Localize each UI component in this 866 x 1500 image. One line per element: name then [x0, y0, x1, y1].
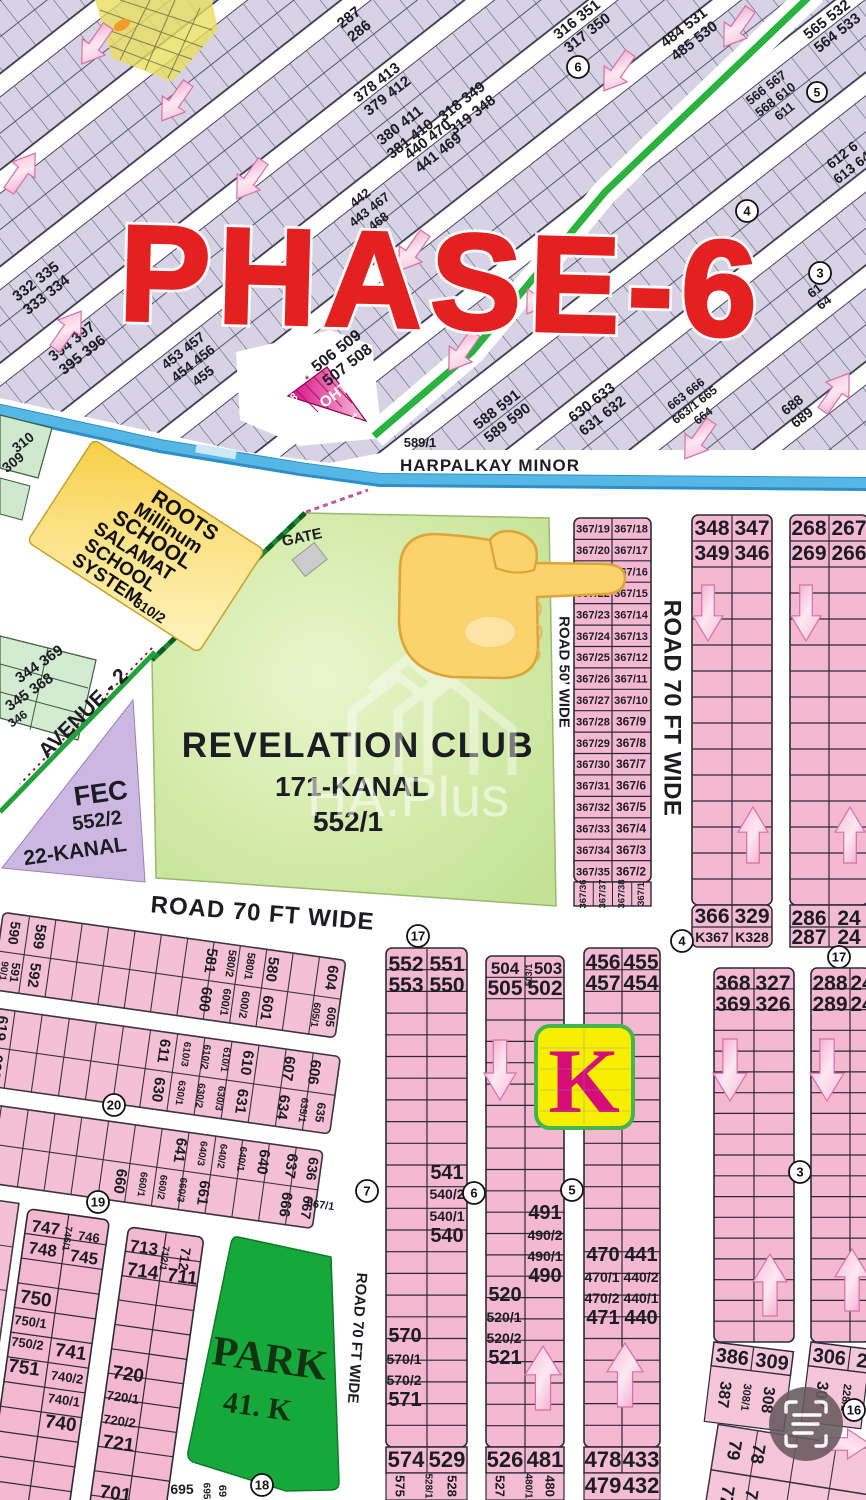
svg-text:641: 641: [170, 1137, 190, 1164]
svg-text:269: 269: [791, 542, 826, 565]
svg-text:18: 18: [255, 1478, 269, 1493]
svg-text:6: 6: [574, 60, 581, 75]
svg-text:367/1: 367/1: [636, 881, 647, 905]
svg-text:2: 2: [855, 1350, 866, 1373]
svg-text:747: 747: [30, 1216, 61, 1239]
svg-text:367/33: 367/33: [576, 824, 610, 836]
svg-text:526: 526: [487, 1447, 524, 1472]
svg-text:589/1: 589/1: [404, 435, 437, 450]
svg-text:746: 746: [77, 1228, 101, 1246]
svg-text:480: 480: [543, 1475, 558, 1497]
svg-text:367/30: 367/30: [576, 759, 610, 771]
svg-text:367/32: 367/32: [576, 802, 610, 814]
svg-text:541: 541: [430, 1162, 463, 1184]
svg-text:713: 713: [129, 1236, 160, 1259]
svg-text:329: 329: [734, 905, 769, 928]
svg-text:748: 748: [27, 1238, 58, 1261]
svg-text:367/34: 367/34: [576, 845, 611, 857]
svg-text:471: 471: [586, 1307, 619, 1329]
svg-text:367/4: 367/4: [616, 822, 646, 836]
svg-text:367/14: 367/14: [614, 609, 649, 621]
svg-text:528: 528: [445, 1475, 460, 1497]
svg-text:327: 327: [755, 972, 790, 995]
svg-text:607: 607: [278, 1055, 298, 1082]
svg-text:470/2: 470/2: [584, 1290, 619, 1306]
svg-text:714: 714: [125, 1259, 160, 1284]
svg-text:605: 605: [322, 1006, 339, 1028]
svg-text:570/1: 570/1: [386, 1351, 421, 1367]
svg-text:78: 78: [747, 1443, 770, 1466]
svg-text:432: 432: [623, 1473, 660, 1498]
svg-text:348: 348: [694, 517, 729, 540]
svg-text:478: 478: [585, 1447, 622, 1472]
svg-text:661: 661: [193, 1179, 213, 1206]
svg-text:367/26: 367/26: [576, 674, 610, 686]
svg-text:368: 368: [715, 972, 750, 995]
svg-text:740: 740: [43, 1411, 77, 1436]
svg-text:367/23: 367/23: [576, 609, 610, 621]
svg-text:502: 502: [527, 977, 562, 1000]
svg-text:19: 19: [91, 1195, 105, 1210]
svg-text:76: 76: [739, 1488, 762, 1500]
svg-text:551: 551: [429, 953, 464, 976]
svg-text:367/29: 367/29: [576, 738, 610, 750]
svg-text:387: 387: [714, 1380, 734, 1409]
svg-text:600: 600: [195, 986, 215, 1013]
svg-text:77: 77: [716, 1484, 739, 1500]
svg-text:711: 711: [166, 1265, 200, 1290]
svg-text:ROAD 50’ WIDE: ROAD 50’ WIDE: [556, 616, 573, 728]
svg-text:ROAD 70 FT WIDE: ROAD 70 FT WIDE: [659, 600, 686, 817]
svg-text:367/35: 367/35: [576, 866, 610, 878]
svg-text:456: 456: [585, 951, 620, 974]
svg-text:346: 346: [734, 542, 769, 565]
svg-text:367/11: 367/11: [614, 674, 647, 686]
svg-text:367/25: 367/25: [576, 652, 610, 664]
svg-text:695: 695: [170, 1481, 194, 1497]
svg-text:590: 590: [5, 920, 24, 946]
svg-text:580: 580: [262, 956, 282, 983]
svg-text:367/5: 367/5: [616, 800, 646, 814]
svg-text:366: 366: [694, 905, 729, 928]
svg-text:527: 527: [493, 1475, 508, 1497]
svg-text:*: *: [305, 374, 310, 386]
svg-text:601: 601: [256, 994, 276, 1021]
svg-text:637: 637: [281, 1152, 301, 1179]
svg-text:660: 660: [110, 1168, 130, 1195]
svg-text:289: 289: [812, 993, 847, 1016]
svg-text:17: 17: [411, 929, 425, 944]
svg-text:751: 751: [7, 1356, 42, 1381]
svg-text:367/28: 367/28: [576, 716, 610, 728]
svg-text:367/8: 367/8: [616, 736, 646, 750]
svg-text:367/10: 367/10: [614, 695, 648, 707]
svg-text:24: 24: [850, 972, 866, 995]
svg-text:479: 479: [585, 1473, 622, 1498]
svg-text:480/1: 480/1: [523, 1473, 534, 1498]
svg-text:606: 606: [304, 1059, 324, 1086]
svg-text:367/24: 367/24: [576, 631, 611, 643]
svg-text:470: 470: [586, 1244, 619, 1266]
svg-text:HA.Plus: HA.Plus: [307, 765, 509, 828]
svg-text:367/19: 367/19: [576, 524, 610, 536]
svg-text:570/2: 570/2: [386, 1372, 421, 1388]
svg-text:369: 369: [715, 993, 750, 1016]
svg-text:266: 266: [831, 542, 866, 565]
svg-text:367/2: 367/2: [616, 864, 646, 878]
svg-text:504: 504: [491, 959, 520, 978]
svg-text:550: 550: [429, 974, 464, 997]
svg-text:K367: K367: [695, 929, 729, 945]
svg-text:589: 589: [29, 923, 49, 950]
svg-text:367/20: 367/20: [576, 545, 610, 557]
svg-text:349: 349: [694, 542, 729, 565]
svg-text:631: 631: [231, 1088, 251, 1115]
svg-text:540/2: 540/2: [429, 1186, 464, 1202]
svg-text:367/6: 367/6: [616, 779, 646, 793]
svg-text:666: 666: [275, 1191, 295, 1218]
svg-text:367/37: 367/37: [597, 879, 608, 908]
svg-text:529: 529: [429, 1447, 466, 1472]
svg-text:79: 79: [723, 1439, 746, 1462]
svg-text:16: 16: [847, 1403, 861, 1418]
svg-text:268: 268: [791, 517, 826, 540]
svg-text:581: 581: [200, 947, 220, 974]
svg-text:571: 571: [388, 1389, 421, 1411]
svg-text:720: 720: [111, 1362, 145, 1387]
svg-text:592: 592: [24, 962, 44, 989]
svg-text:540: 540: [430, 1225, 463, 1247]
svg-text:591: 591: [7, 962, 24, 984]
svg-text:520/2: 520/2: [486, 1330, 521, 1346]
svg-text:REVELATION CLUB: REVELATION CLUB: [182, 726, 534, 765]
svg-text:745: 745: [69, 1246, 100, 1269]
svg-text:634: 634: [273, 1094, 293, 1122]
svg-text:741: 741: [53, 1340, 88, 1365]
svg-text:490/2: 490/2: [527, 1227, 562, 1243]
svg-text:470/1: 470/1: [584, 1269, 619, 1285]
svg-text:367/36: 367/36: [578, 879, 589, 908]
svg-text:490/1: 490/1: [527, 1248, 562, 1264]
svg-text:367/38: 367/38: [617, 879, 628, 908]
svg-text:440/2: 440/2: [623, 1269, 658, 1285]
svg-text:267: 267: [831, 517, 866, 540]
svg-text:520/1: 520/1: [486, 1309, 521, 1325]
svg-text:6: 6: [470, 1186, 477, 1201]
svg-text:4: 4: [678, 934, 686, 949]
svg-text:611: 611: [153, 1038, 173, 1064]
svg-text:575: 575: [393, 1475, 408, 1497]
svg-text:695: 695: [201, 1483, 212, 1500]
svg-text:367/9: 367/9: [616, 714, 646, 728]
svg-text:69: 69: [216, 1485, 228, 1497]
svg-text:636: 636: [303, 1156, 322, 1182]
svg-text:630: 630: [148, 1076, 168, 1103]
svg-text:367/17: 367/17: [614, 545, 648, 557]
svg-text:367/13: 367/13: [614, 631, 648, 643]
svg-text:PHASE-6: PHASE-6: [118, 197, 767, 366]
svg-text:635: 635: [312, 1102, 329, 1124]
svg-text:552: 552: [388, 953, 423, 976]
svg-text:520: 520: [488, 1284, 521, 1306]
svg-text:433: 433: [623, 1447, 660, 1472]
svg-text:441: 441: [624, 1244, 657, 1266]
svg-text:540/1: 540/1: [429, 1208, 464, 1224]
svg-text:440/1: 440/1: [623, 1290, 658, 1306]
svg-text:367/18: 367/18: [614, 524, 648, 536]
svg-text:521: 521: [488, 1347, 521, 1369]
svg-text:503: 503: [534, 959, 562, 978]
svg-text:288: 288: [812, 972, 847, 995]
svg-text:HARPALKAY MINOR: HARPALKAY MINOR: [400, 456, 580, 475]
svg-text:20: 20: [107, 1098, 121, 1113]
svg-text:367/27: 367/27: [576, 695, 610, 707]
svg-text:457: 457: [585, 972, 620, 995]
svg-text:640: 640: [253, 1148, 273, 1175]
svg-text:5: 5: [568, 1183, 575, 1198]
svg-text:326: 326: [755, 993, 790, 1016]
svg-text:5: 5: [814, 85, 821, 99]
svg-text:440: 440: [624, 1307, 657, 1329]
svg-text:491: 491: [528, 1202, 561, 1224]
svg-text:K328: K328: [735, 929, 769, 945]
svg-text:7: 7: [363, 1184, 370, 1199]
svg-text:721: 721: [101, 1431, 136, 1456]
svg-text:505: 505: [487, 977, 522, 1000]
svg-text:750: 750: [19, 1287, 53, 1312]
svg-text:481: 481: [527, 1447, 564, 1472]
svg-text:24: 24: [850, 993, 866, 1016]
svg-text:455: 455: [623, 951, 658, 974]
svg-text:3: 3: [816, 266, 823, 281]
svg-text:367/31: 367/31: [576, 781, 610, 793]
svg-text:454: 454: [623, 972, 658, 995]
svg-text:610: 610: [237, 1049, 257, 1076]
svg-text:3: 3: [796, 1165, 803, 1180]
svg-text:367/7: 367/7: [616, 757, 646, 771]
svg-text:604: 604: [321, 964, 341, 992]
svg-text:701: 701: [98, 1482, 133, 1500]
svg-text:490: 490: [528, 1265, 561, 1287]
svg-text:367/12: 367/12: [614, 652, 648, 664]
svg-text:367/3: 367/3: [616, 843, 646, 857]
svg-text:574: 574: [388, 1447, 425, 1472]
svg-text:347: 347: [734, 517, 769, 540]
svg-text:553: 553: [388, 974, 423, 997]
svg-text:570: 570: [388, 1325, 421, 1347]
svg-text:17: 17: [832, 950, 846, 965]
svg-text:528/1: 528/1: [423, 1473, 434, 1498]
svg-text:287: 287: [791, 926, 826, 949]
